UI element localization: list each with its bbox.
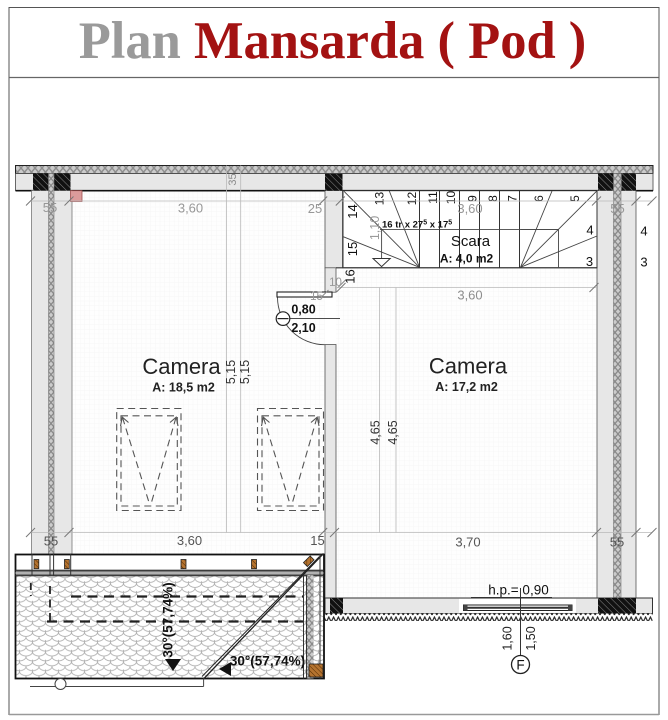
svg-text:4: 4 <box>640 224 647 239</box>
svg-text:16 tr x 275 x 175: 16 tr x 275 x 175 <box>382 220 452 231</box>
svg-text:55: 55 <box>44 534 58 549</box>
svg-text:3: 3 <box>640 255 647 270</box>
svg-text:4,65: 4,65 <box>386 420 400 444</box>
svg-text:Plan Mansarda ( Pod ): Plan Mansarda ( Pod ) <box>79 12 587 70</box>
svg-text:15: 15 <box>310 291 323 303</box>
svg-text:1,60: 1,60 <box>501 626 515 650</box>
svg-text:55: 55 <box>610 201 624 216</box>
svg-text:Scara: Scara <box>451 233 491 250</box>
svg-text:h.p.= 0,90: h.p.= 0,90 <box>488 583 548 598</box>
svg-text:4: 4 <box>586 223 593 238</box>
svg-text:30°(57,74%): 30°(57,74%) <box>230 654 305 669</box>
svg-text:55: 55 <box>610 535 624 550</box>
svg-text:3,70: 3,70 <box>455 535 480 550</box>
svg-text:A: 4,0 m2: A: 4,0 m2 <box>440 252 494 266</box>
svg-text:3,60: 3,60 <box>178 201 203 216</box>
svg-text:25: 25 <box>308 201 322 216</box>
svg-text:1,50: 1,50 <box>524 626 538 650</box>
svg-text:5,15: 5,15 <box>238 360 252 384</box>
svg-text:2,10: 2,10 <box>291 321 315 335</box>
svg-text:3,60: 3,60 <box>457 288 482 303</box>
svg-text:12: 12 <box>405 192 419 206</box>
svg-text:A: 17,2 m2: A: 17,2 m2 <box>435 380 498 394</box>
svg-text:F: F <box>516 658 524 673</box>
svg-text:15: 15 <box>310 533 324 548</box>
svg-text:Camera: Camera <box>429 354 508 379</box>
svg-text:11: 11 <box>426 191 440 204</box>
svg-text:3,60: 3,60 <box>177 533 202 548</box>
svg-text:16: 16 <box>343 269 358 283</box>
svg-text:Camera: Camera <box>142 354 221 379</box>
svg-text:3: 3 <box>586 254 593 269</box>
svg-text:13: 13 <box>373 192 387 206</box>
svg-text:10: 10 <box>444 191 458 205</box>
svg-text:30°(57,74%): 30°(57,74%) <box>161 582 176 657</box>
svg-text:55: 55 <box>43 200 57 215</box>
svg-text:5,15: 5,15 <box>224 360 238 384</box>
svg-text:0,80: 0,80 <box>291 303 315 317</box>
svg-text:35: 35 <box>227 173 239 185</box>
svg-text:4,65: 4,65 <box>369 420 383 444</box>
svg-text:1,10: 1,10 <box>368 216 382 240</box>
svg-text:15: 15 <box>345 242 360 256</box>
svg-text:A: 18,5 m2: A: 18,5 m2 <box>152 381 215 395</box>
svg-text:3,60: 3,60 <box>457 201 482 216</box>
svg-text:14: 14 <box>345 204 360 218</box>
